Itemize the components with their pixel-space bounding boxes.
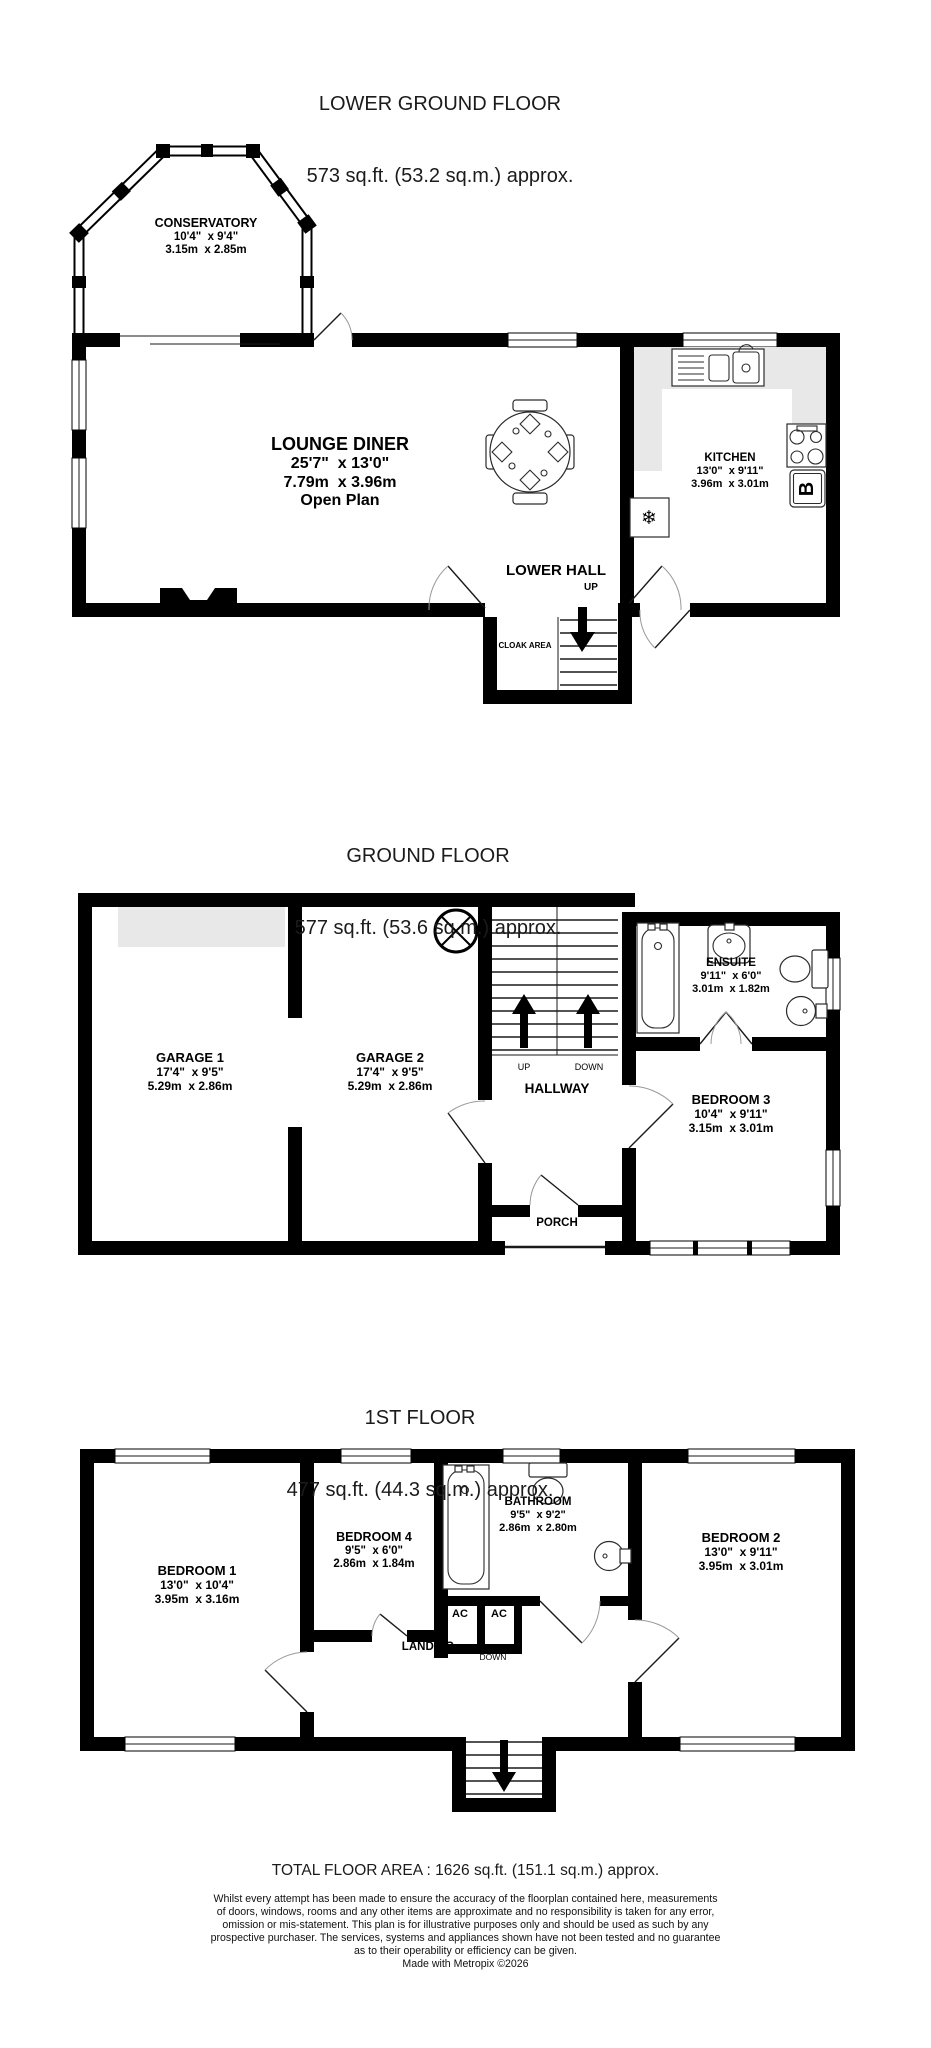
room-label-garage1: GARAGE 1 17'4" x 9'5" 5.29m x 2.86m bbox=[148, 1050, 233, 1093]
room-name: ENSUITE bbox=[692, 957, 770, 970]
room-name: LOUNGE DINER bbox=[271, 434, 409, 455]
disclaimer-line: as to their operability or efficiency ca… bbox=[0, 1945, 931, 1958]
ff-staircase bbox=[452, 1737, 556, 1812]
disclaimer-line: omission or mis-statement. This plan is … bbox=[0, 1919, 931, 1932]
stairs-up-arrow bbox=[520, 1012, 528, 1048]
room-label-ensuite: ENSUITE 9'11" x 6'0" 3.01m x 1.82m bbox=[692, 957, 770, 996]
ensuite-basin-icon bbox=[787, 997, 828, 1026]
boiler-icon: B bbox=[790, 470, 825, 507]
floorplan-drawing: B ❄ bbox=[0, 0, 931, 2048]
room-dim-imperial: 13'0" x 9'11" bbox=[699, 1545, 784, 1559]
room-name: BEDROOM 4 bbox=[333, 1530, 414, 1545]
floorplan-page: B ❄ bbox=[0, 0, 931, 2048]
room-dim-metric: 2.86m x 2.80m bbox=[499, 1522, 577, 1535]
room-dim-imperial: 13'0" x 10'4" bbox=[155, 1578, 240, 1592]
room-label-bedroom1: BEDROOM 1 13'0" x 10'4" 3.95m x 3.16m bbox=[155, 1563, 240, 1606]
stairs-up-arrow bbox=[578, 607, 587, 634]
room-dim-imperial: 13'0" x 9'11" bbox=[691, 465, 769, 478]
cloak-stairs-extension bbox=[483, 603, 632, 704]
ac-cupboard-label-right: AC bbox=[491, 1608, 507, 1620]
room-label-bedroom3: BEDROOM 3 10'4" x 9'11" 3.15m x 3.01m bbox=[689, 1092, 774, 1135]
garage-storage-area bbox=[118, 907, 285, 947]
lower-ground-floor-title: LOWER GROUND FLOOR 573 sq.ft. (53.2 sq.m… bbox=[307, 44, 574, 212]
disclaimer-line: of doors, windows, rooms and any other i… bbox=[0, 1906, 931, 1919]
fireplace-icon bbox=[160, 588, 237, 604]
stairs-down-label: DOWN bbox=[575, 1062, 604, 1072]
bath-icon bbox=[637, 923, 679, 1033]
room-dim-imperial: 10'4" x 9'11" bbox=[689, 1107, 774, 1121]
bedroom2-door bbox=[635, 1620, 679, 1682]
room-label-garage2: GARAGE 2 17'4" x 9'5" 5.29m x 2.86m bbox=[348, 1050, 433, 1093]
room-dim-metric: 3.95m x 3.16m bbox=[155, 1592, 240, 1606]
kitchen-sink-icon bbox=[672, 345, 764, 386]
stairs-down-arrow bbox=[584, 1012, 592, 1048]
room-label-lounge-diner: LOUNGE DINER 25'7" x 13'0" 7.79m x 3.96m… bbox=[271, 434, 409, 511]
room-dim-imperial: 9'11" x 6'0" bbox=[692, 970, 770, 983]
stairs-up-label: UP bbox=[584, 582, 598, 593]
stairs-down-label: DOWN bbox=[480, 1652, 507, 1662]
bathroom-basin-icon bbox=[595, 1542, 632, 1571]
room-name: GARAGE 1 bbox=[148, 1050, 233, 1065]
boiler-letter: B bbox=[796, 482, 818, 496]
floor-subtitle-text: 573 sq.ft. (53.2 sq.m.) approx. bbox=[307, 164, 574, 188]
conservatory-door bbox=[314, 313, 352, 340]
footer: TOTAL FLOOR AREA : 1626 sq.ft. (151.1 sq… bbox=[0, 1862, 931, 1971]
room-dim-imperial: 10'4" x 9'4" bbox=[155, 231, 258, 244]
room-dim-metric: 2.86m x 1.84m bbox=[333, 1558, 414, 1571]
ground-floor-title: GROUND FLOOR 577 sq.ft. (53.6 sq.m.) app… bbox=[295, 796, 562, 964]
freezer-icon: ❄ bbox=[630, 498, 669, 537]
room-label-bedroom4: BEDROOM 4 9'5" x 6'0" 2.86m x 1.84m bbox=[333, 1530, 414, 1572]
room-dim-metric: 5.29m x 2.86m bbox=[348, 1079, 433, 1093]
room-label-porch: PORCH bbox=[536, 1217, 578, 1229]
room-label-lower-hall: LOWER HALL bbox=[506, 562, 606, 579]
bedroom1-door bbox=[265, 1652, 307, 1712]
porch-door bbox=[530, 1175, 578, 1205]
room-dim-metric: 3.95m x 3.01m bbox=[699, 1559, 784, 1573]
room-name: GARAGE 2 bbox=[348, 1050, 433, 1065]
room-name: KITCHEN bbox=[691, 452, 769, 465]
room-label-hallway: HALLWAY bbox=[525, 1081, 590, 1096]
room-note: Open Plan bbox=[271, 492, 409, 511]
room-dim-metric: 3.15m x 2.85m bbox=[155, 244, 258, 257]
room-dim-imperial: 9'5" x 9'2" bbox=[499, 1509, 577, 1522]
floor-title-text: 1ST FLOOR bbox=[287, 1406, 554, 1430]
room-label-conservatory: CONSERVATORY 10'4" x 9'4" 3.15m x 2.85m bbox=[155, 216, 258, 258]
room-dim-imperial: 25'7" x 13'0" bbox=[271, 455, 409, 474]
stairs-up-label: UP bbox=[518, 1062, 531, 1072]
ensuite-door bbox=[700, 1012, 752, 1044]
room-dim-metric: 3.15m x 3.01m bbox=[689, 1121, 774, 1135]
room-dim-metric: 3.96m x 3.01m bbox=[691, 478, 769, 491]
room-label-bedroom2: BEDROOM 2 13'0" x 9'11" 3.95m x 3.01m bbox=[699, 1530, 784, 1573]
disclaimer-line: Whilst every attempt has been made to en… bbox=[0, 1893, 931, 1906]
room-name: BATHROOM bbox=[499, 1496, 577, 1509]
room-label-bathroom: BATHROOM 9'5" x 9'2" 2.86m x 2.80m bbox=[499, 1496, 577, 1535]
room-name: BEDROOM 2 bbox=[699, 1530, 784, 1545]
dining-table-icon bbox=[486, 400, 574, 504]
room-dim-metric: 5.29m x 2.86m bbox=[148, 1079, 233, 1093]
room-name: CONSERVATORY bbox=[155, 216, 258, 231]
room-name: BEDROOM 1 bbox=[155, 1563, 240, 1578]
room-dim-imperial: 9'5" x 6'0" bbox=[333, 1545, 414, 1558]
garden-door bbox=[640, 610, 690, 648]
room-label-landing: LANDING bbox=[402, 1641, 454, 1653]
room-dim-imperial: 17'4" x 9'5" bbox=[348, 1065, 433, 1079]
total-floor-area: TOTAL FLOOR AREA : 1626 sq.ft. (151.1 sq… bbox=[0, 1862, 931, 1880]
stairs-down-arrow bbox=[500, 1740, 508, 1774]
floor-title-text: LOWER GROUND FLOOR bbox=[307, 92, 574, 116]
room-dim-metric: 3.01m x 1.82m bbox=[692, 983, 770, 996]
metropix-credit: Made with Metropix ©2026 bbox=[0, 1958, 931, 1971]
disclaimer-line: prospective purchaser. The services, sys… bbox=[0, 1932, 931, 1945]
room-label-kitchen: KITCHEN 13'0" x 9'11" 3.96m x 3.01m bbox=[691, 452, 769, 491]
snowflake-glyph: ❄ bbox=[641, 507, 657, 529]
garage2-door bbox=[448, 1101, 485, 1163]
hob-icon bbox=[787, 424, 826, 467]
room-name: BEDROOM 3 bbox=[689, 1092, 774, 1107]
bedroom4-door bbox=[372, 1614, 407, 1636]
floor-title-text: GROUND FLOOR bbox=[295, 844, 562, 868]
ac-cupboard-label-left: AC bbox=[452, 1608, 468, 1620]
room-dim-metric: 7.79m x 3.96m bbox=[271, 474, 409, 493]
bedroom3-door bbox=[629, 1086, 673, 1148]
floor-subtitle-text: 577 sq.ft. (53.6 sq.m.) approx. bbox=[295, 916, 562, 940]
room-label-cloak-area: CLOAK AREA bbox=[498, 641, 551, 650]
room-dim-imperial: 17'4" x 9'5" bbox=[148, 1065, 233, 1079]
bathroom-door bbox=[540, 1601, 600, 1643]
toilet-icon bbox=[780, 950, 828, 988]
